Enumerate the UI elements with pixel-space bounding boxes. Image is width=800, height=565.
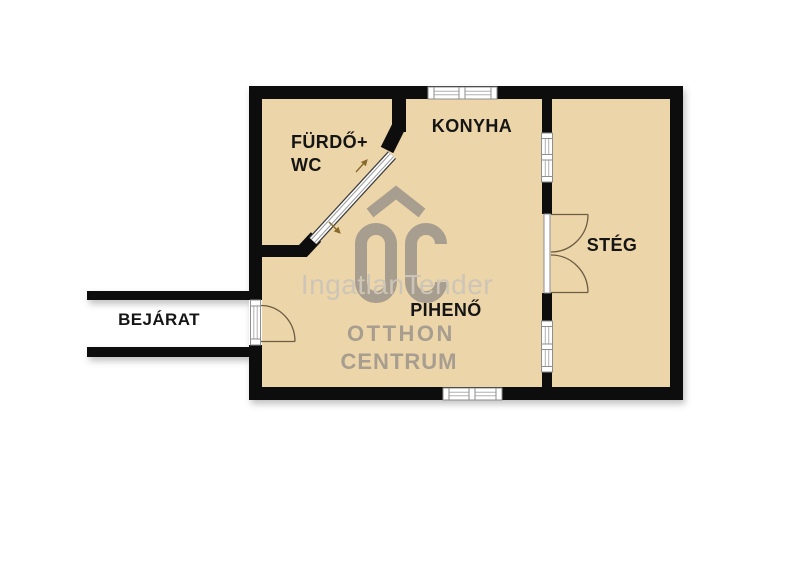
lounge-window-mullion-right <box>496 388 502 400</box>
room-label-lounge: PIHENŐ <box>386 300 506 321</box>
kitchen-window <box>428 87 497 99</box>
kitchen-window-mullion-mid <box>459 87 465 99</box>
kitchen-window-mullion-left <box>428 87 434 99</box>
kitchen-window-mullion-right <box>491 87 497 99</box>
deck-window-lower-mullion-bottom <box>542 367 553 373</box>
entrance-door-jamb-bottom <box>251 339 261 345</box>
room-label-entrance: BEJÁRAT <box>99 310 219 330</box>
room-label-deck: STÉG <box>552 235 672 256</box>
middle-wall-segment-4 <box>542 372 552 387</box>
deck-window-lower-mullion-mid <box>542 344 553 350</box>
room-label-bathroom: FÜRDŐ+ WC <box>291 131 368 177</box>
entrance-door-jamb-top <box>251 300 261 306</box>
watermark-brand-line1: OTTHON <box>331 321 471 347</box>
deck-window-lower <box>542 321 553 372</box>
entrance-corridor-wall-bottom <box>87 347 250 357</box>
deck-window-upper-mullion-bottom <box>542 177 553 183</box>
deck-window-upper-mullion-top <box>542 133 553 139</box>
lounge-window <box>443 388 502 400</box>
middle-wall-segment-2 <box>542 182 552 214</box>
deck-window-lower-mullion-top <box>542 321 553 327</box>
entrance-door-frame <box>251 300 261 345</box>
room-label-bathroom-line2: WC <box>291 154 368 177</box>
deck-window-upper-mullion-mid <box>542 155 553 161</box>
room-label-kitchen: KONYHA <box>412 116 532 137</box>
floorplan-canvas: IngatlanTender OTTHON CENTRUM FÜRDŐ+ WC … <box>0 0 800 565</box>
watermark-brand-line2: CENTRUM <box>329 349 469 375</box>
middle-wall-segment-3 <box>542 293 552 321</box>
lounge-window-mullion-mid <box>469 388 475 400</box>
deck-door-frame <box>544 214 550 293</box>
room-label-bathroom-line1: FÜRDŐ+ <box>291 131 368 154</box>
deck-window-upper <box>542 133 553 182</box>
middle-wall-segment-1 <box>542 99 552 133</box>
entrance-corridor-wall-top <box>87 291 250 300</box>
watermark-overlay-text: IngatlanTender <box>285 269 509 301</box>
lounge-window-mullion-left <box>443 388 449 400</box>
